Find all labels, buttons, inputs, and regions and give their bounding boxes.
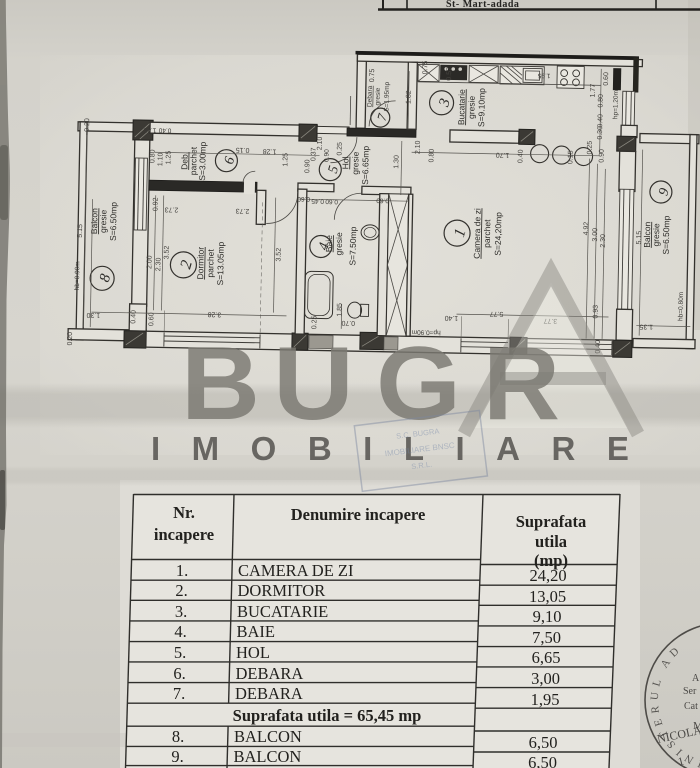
svg-text:B: B <box>181 326 260 442</box>
svg-text:1.40: 1.40 <box>444 314 458 321</box>
svg-text:hp=1.20m: hp=1.20m <box>612 90 620 119</box>
svg-text:0.90: 0.90 <box>598 149 605 163</box>
svg-text:0.80: 0.80 <box>428 149 435 163</box>
svg-text:2.10: 2.10 <box>317 136 324 150</box>
svg-text:9.: 9. <box>171 747 183 766</box>
svg-text:1.30: 1.30 <box>86 311 100 318</box>
svg-text:0.20: 0.20 <box>67 332 74 346</box>
svg-text:parchet: parchet <box>205 248 216 277</box>
svg-text:Camera de zi: Camera de zi <box>472 208 483 259</box>
svg-text:0.25: 0.25 <box>337 142 344 156</box>
svg-text:2.73: 2.73 <box>165 205 179 212</box>
svg-text:0.80: 0.80 <box>149 149 156 163</box>
svg-text:24,20: 24,20 <box>529 566 566 585</box>
svg-text:Suprafata utila = 65,45 mp: Suprafata utila = 65,45 mp <box>233 706 422 725</box>
svg-text:3.: 3. <box>175 602 187 621</box>
svg-text:hb=0.80m: hb=0.80m <box>677 292 685 321</box>
svg-text:1.85: 1.85 <box>336 303 343 317</box>
svg-text:3,00: 3,00 <box>531 669 560 688</box>
svg-text:3.00: 3.00 <box>592 228 599 242</box>
svg-text:3.28: 3.28 <box>207 310 221 317</box>
svg-text:0.40: 0.40 <box>130 310 137 324</box>
svg-text:CAMERA DE ZI: CAMERA DE ZI <box>238 561 354 580</box>
svg-text:13,05: 13,05 <box>529 587 566 606</box>
svg-text:S=6.50mp: S=6.50mp <box>661 215 672 254</box>
svg-text:1.25: 1.25 <box>165 151 172 165</box>
svg-text:gresie: gresie <box>375 87 382 105</box>
svg-text:1.10: 1.10 <box>157 152 164 166</box>
svg-text:S=24,20mp: S=24,20mp <box>493 212 504 256</box>
svg-text:0.20: 0.20 <box>84 118 91 132</box>
svg-text:3.52: 3.52 <box>164 246 171 260</box>
svg-text:2.30: 2.30 <box>600 234 607 248</box>
svg-text:hb=0.90m: hb=0.90m <box>74 261 82 290</box>
svg-text:6,65: 6,65 <box>532 648 561 667</box>
svg-text:gresie: gresie <box>334 232 344 256</box>
svg-text:HOL: HOL <box>236 643 270 662</box>
svg-text:0.75: 0.75 <box>369 68 376 82</box>
svg-text:DORMITOR: DORMITOR <box>238 581 326 600</box>
svg-text:1.28: 1.28 <box>263 147 277 154</box>
svg-text:9,10: 9,10 <box>533 607 562 626</box>
svg-text:1,95: 1,95 <box>531 690 560 709</box>
svg-text:2.10: 2.10 <box>415 140 422 154</box>
svg-text:7.: 7. <box>173 684 185 703</box>
svg-text:parchet: parchet <box>482 219 493 248</box>
svg-text:6,50: 6,50 <box>528 753 557 768</box>
svg-text:5.: 5. <box>174 643 186 662</box>
svg-text:S=3.00mp: S=3.00mp <box>197 141 208 180</box>
svg-text:DEBARA: DEBARA <box>235 684 303 703</box>
svg-text:S=6.50mp: S=6.50mp <box>108 202 119 241</box>
svg-text:2.00: 2.00 <box>146 255 153 269</box>
svg-text:2.30: 2.30 <box>155 257 162 271</box>
svg-text:0.60: 0.60 <box>148 312 155 326</box>
svg-text:gresie: gresie <box>651 223 661 247</box>
svg-text:gresie: gresie <box>466 95 476 119</box>
svg-text:1.30: 1.30 <box>393 155 400 169</box>
svg-text:U: U <box>273 326 354 442</box>
svg-text:gresie: gresie <box>98 209 108 233</box>
svg-text:Ser: Ser <box>683 686 697 697</box>
svg-text:0.15: 0.15 <box>236 146 250 153</box>
svg-text:0.30: 0.30 <box>597 126 604 140</box>
svg-text:1.82: 1.82 <box>406 90 413 104</box>
svg-text:0.40: 0.40 <box>597 114 604 128</box>
svg-text:0.60: 0.60 <box>603 72 610 86</box>
svg-text:4.: 4. <box>174 622 186 641</box>
svg-text:BAIE: BAIE <box>237 622 276 641</box>
svg-text:1.45: 1.45 <box>143 126 156 133</box>
svg-text:G: G <box>376 326 461 442</box>
svg-text:5.77: 5.77 <box>490 310 504 317</box>
svg-text:0.60: 0.60 <box>376 197 389 204</box>
svg-text:0.92: 0.92 <box>152 197 159 211</box>
svg-text:0.90: 0.90 <box>304 159 311 173</box>
svg-text:BALCON: BALCON <box>234 747 302 766</box>
svg-text:8.: 8. <box>172 727 184 746</box>
svg-text:S=9.10mp: S=9.10mp <box>476 88 487 127</box>
svg-text:0.57: 0.57 <box>446 67 453 81</box>
svg-text:Bucatarie: Bucatarie <box>456 89 467 125</box>
svg-text:DEBARA: DEBARA <box>236 664 304 683</box>
svg-text:0.93: 0.93 <box>592 305 599 319</box>
svg-text:0.40: 0.40 <box>158 126 171 133</box>
svg-text:incapere: incapere <box>154 525 214 544</box>
svg-text:Hol: Hol <box>340 156 350 169</box>
svg-text:S=1.95mp: S=1.95mp <box>383 81 391 111</box>
svg-text:Suprafata: Suprafata <box>516 512 587 531</box>
svg-text:2.: 2. <box>175 581 187 600</box>
svg-text:Denumire incapere: Denumire incapere <box>291 505 426 524</box>
svg-text:1.95: 1.95 <box>537 72 550 79</box>
svg-text:utila: utila <box>535 532 567 551</box>
svg-text:2.73: 2.73 <box>235 207 249 214</box>
svg-text:BUCATARIE: BUCATARIE <box>237 602 328 621</box>
svg-text:0.75: 0.75 <box>422 60 429 74</box>
svg-text:S=6.65mp: S=6.65mp <box>360 145 371 184</box>
svg-text:0.60: 0.60 <box>325 198 338 205</box>
svg-text:0.60: 0.60 <box>297 195 310 202</box>
svg-text:0.15: 0.15 <box>567 150 574 164</box>
svg-text:5.15: 5.15 <box>636 231 643 245</box>
svg-text:Nr.: Nr. <box>173 503 195 522</box>
svg-text:BALCON: BALCON <box>234 727 302 746</box>
svg-text:0.45: 0.45 <box>311 197 324 204</box>
svg-text:A: A <box>692 673 700 684</box>
svg-text:1.35: 1.35 <box>639 323 653 330</box>
svg-text:4.92: 4.92 <box>583 222 590 236</box>
svg-text:5.15: 5.15 <box>77 224 84 238</box>
svg-text:0.90: 0.90 <box>323 149 330 162</box>
svg-text:6.: 6. <box>173 664 185 683</box>
svg-text:1.25: 1.25 <box>282 153 289 167</box>
svg-text:R: R <box>483 326 560 442</box>
svg-text:1.70: 1.70 <box>496 151 510 158</box>
svg-text:Cat: Cat <box>684 701 698 712</box>
svg-text:1.77: 1.77 <box>590 84 597 98</box>
svg-text:0.80: 0.80 <box>598 94 605 108</box>
svg-text:S=13.05mp: S=13.05mp <box>215 241 226 285</box>
svg-text:6,50: 6,50 <box>529 733 558 752</box>
svg-text:0.25: 0.25 <box>587 141 594 155</box>
svg-text:gresie: gresie <box>350 151 360 175</box>
svg-text:St- Mart-adada: St- Mart-adada <box>446 0 519 10</box>
svg-text:1.: 1. <box>176 561 188 580</box>
svg-text:3.52: 3.52 <box>276 248 283 262</box>
svg-text:0.40: 0.40 <box>517 149 524 163</box>
svg-text:7,50: 7,50 <box>532 628 561 647</box>
svg-text:Debara: Debara <box>366 85 373 107</box>
svg-text:S=7.50mp: S=7.50mp <box>347 226 358 265</box>
